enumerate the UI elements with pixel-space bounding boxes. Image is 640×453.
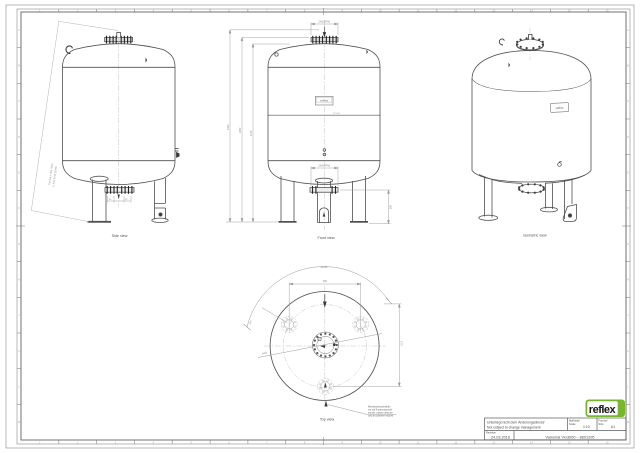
svg-text:C: C xyxy=(627,99,629,103)
svg-text:K: K xyxy=(18,349,20,353)
svg-text:Variomat VG3000 – 8601205: Variomat VG3000 – 8601205 xyxy=(546,435,595,439)
svg-text:A: A xyxy=(627,28,629,32)
svg-text:Not subject to change manageme: Not subject to change management xyxy=(487,425,541,429)
svg-text:C: C xyxy=(18,99,20,103)
svg-text:Top view: Top view xyxy=(320,418,335,422)
svg-text:Scale: Scale xyxy=(569,422,576,426)
svg-text:F: F xyxy=(18,206,20,210)
svg-text:Format/: Format/ xyxy=(599,419,608,423)
svg-text:L: L xyxy=(627,385,629,389)
svg-text:A1: A1 xyxy=(611,425,615,429)
svg-text:Unterliegt nicht dem Änderungs: Unterliegt nicht dem Änderungsdienst/ xyxy=(487,421,545,425)
svg-text:Revision: Revision xyxy=(486,431,497,435)
svg-text:ø1345: ø1345 xyxy=(321,266,328,269)
svg-text:Front view: Front view xyxy=(317,236,334,240)
svg-text:H: H xyxy=(627,278,629,282)
svg-text:2170: 2170 xyxy=(250,130,253,136)
svg-text:B: B xyxy=(18,64,20,68)
svg-text:reflex: reflex xyxy=(555,106,564,110)
svg-text:95: 95 xyxy=(109,199,112,201)
svg-text:Membranbruchmelder: Membranbruchmelder xyxy=(368,405,391,408)
svg-text:95: 95 xyxy=(125,199,128,201)
svg-text:660: 660 xyxy=(323,280,328,283)
svg-text:only at customer request: only at customer request xyxy=(368,414,394,417)
svg-text:2257: 2257 xyxy=(239,127,242,133)
svg-text:1110: 1110 xyxy=(400,340,403,346)
svg-text:ø450: ø450 xyxy=(262,351,269,355)
svg-text:membr. rupture detector: membr. rupture detector xyxy=(368,411,393,414)
svg-text:A: A xyxy=(18,28,20,32)
svg-text:J: J xyxy=(627,313,629,317)
svg-text:Size: Size xyxy=(599,422,605,426)
svg-text:reflex: reflex xyxy=(589,404,617,416)
svg-text:J: J xyxy=(18,313,20,317)
svg-text:D: D xyxy=(627,135,629,139)
svg-text:#P 002: #P 002 xyxy=(333,113,341,115)
svg-text:reflex: reflex xyxy=(320,99,328,103)
svg-text:24.03.2016: 24.03.2016 xyxy=(491,436,510,440)
svg-text:1:10: 1:10 xyxy=(583,425,590,429)
svg-text:F: F xyxy=(627,206,629,210)
svg-text:DN25/PN6: DN25/PN6 xyxy=(319,20,331,23)
svg-text:E: E xyxy=(627,171,629,175)
svg-text:650: 650 xyxy=(390,204,393,209)
svg-text:D: D xyxy=(18,135,20,139)
svg-text:nur auf Kundenwunsch/: nur auf Kundenwunsch/ xyxy=(368,408,392,411)
svg-text:G: G xyxy=(18,242,20,246)
svg-text:M: M xyxy=(627,420,629,424)
svg-text:M: M xyxy=(18,420,20,424)
svg-text:B: B xyxy=(627,64,629,68)
svg-text:L: L xyxy=(18,385,20,389)
svg-text:G: G xyxy=(627,242,629,246)
svg-text:Side view: Side view xyxy=(112,234,128,238)
svg-text:Isometric view: Isometric view xyxy=(523,234,547,238)
svg-text:2340: 2340 xyxy=(227,124,230,130)
svg-text:H: H xyxy=(18,278,20,282)
svg-text:E: E xyxy=(18,171,20,175)
svg-text:K: K xyxy=(627,349,629,353)
svg-text:DN50/PN6: DN50/PN6 xyxy=(319,164,331,167)
svg-text:Maßstab/: Maßstab/ xyxy=(569,419,580,423)
